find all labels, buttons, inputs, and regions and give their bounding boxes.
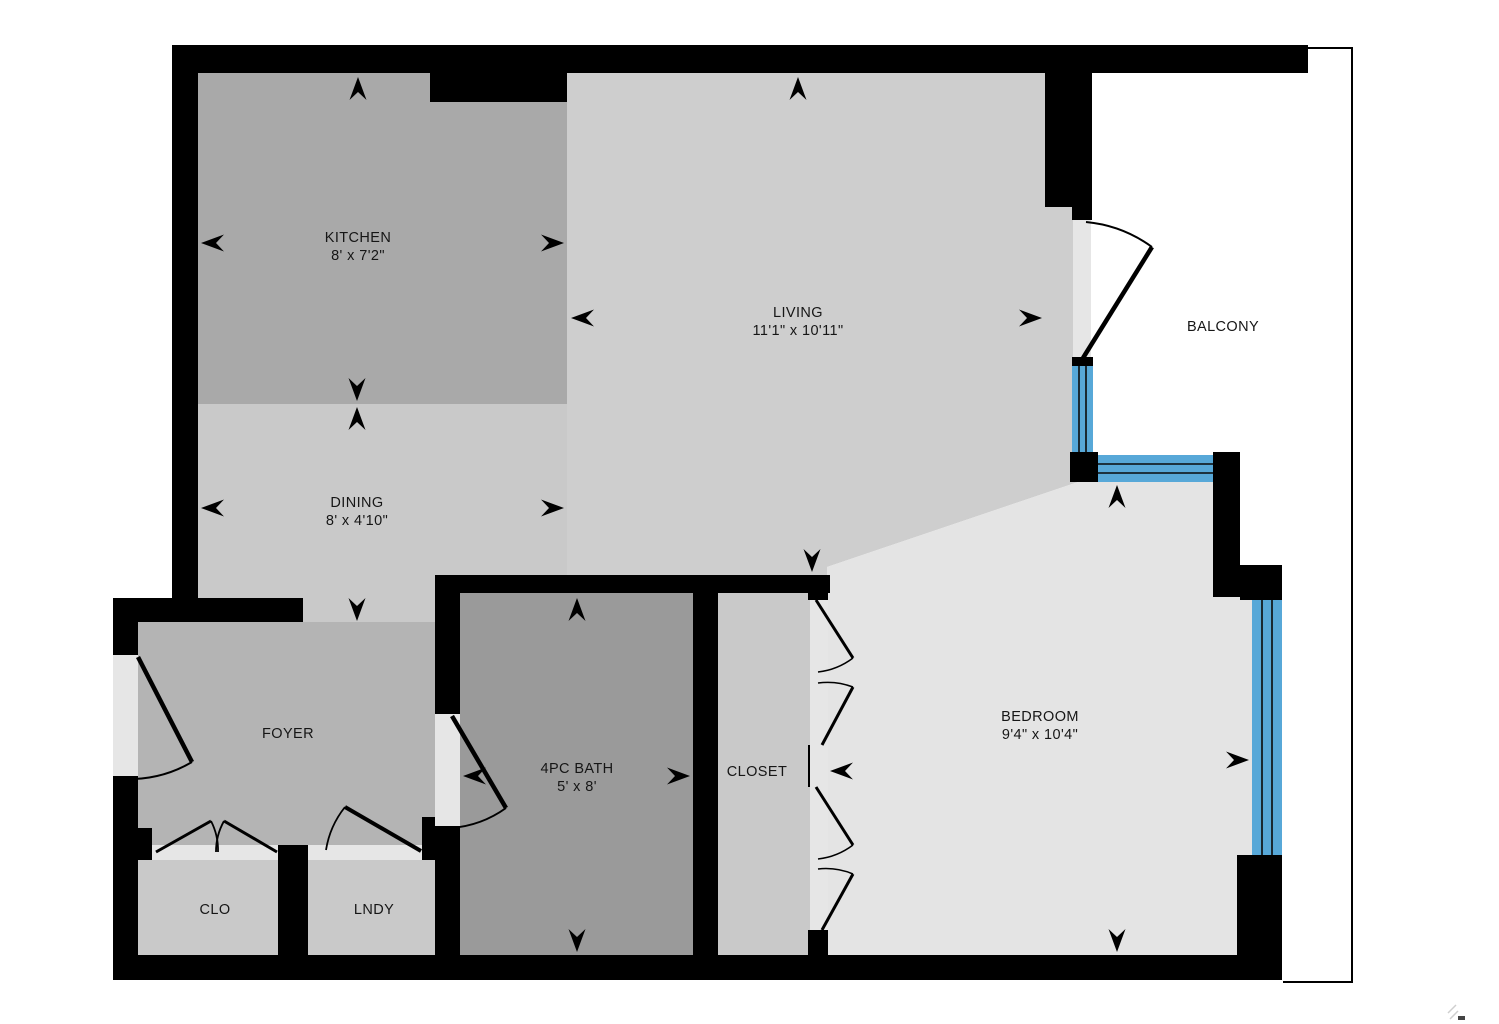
label-bath-dims: 5' x 8' — [557, 779, 597, 795]
opening-closet-bifold-track — [810, 600, 828, 930]
wall-bottom — [113, 955, 1282, 980]
label-lndy-name: LNDY — [354, 902, 394, 918]
wall-left — [172, 45, 198, 598]
wall-foyer-corner — [113, 828, 152, 860]
label-bedroom-name: BEDROOM — [1001, 709, 1079, 725]
label-kitchen-name: KITCHEN — [325, 230, 391, 246]
balcony-outline — [1283, 48, 1352, 982]
label-living-name: LIVING — [773, 305, 823, 321]
label-bath-name: 4PC BATH — [540, 761, 613, 777]
window-living-bedroom-horizontal — [1098, 455, 1213, 482]
wall-foyer-top — [113, 598, 303, 622]
watermark-stroke-1 — [1448, 1005, 1456, 1013]
watermark-dash — [1458, 1016, 1465, 1020]
label-kitchen-dims: 8' x 7'2" — [331, 248, 385, 264]
wall-window1-cap — [1072, 357, 1093, 366]
wall-bifold-stub-bottom — [808, 930, 828, 958]
wall-bath-west-upper — [435, 575, 460, 714]
wall-living-column — [1045, 73, 1092, 207]
label-balcony-name: BALCONY — [1187, 319, 1259, 335]
window-living-side — [1072, 366, 1093, 452]
wall-window-corner-block — [1070, 452, 1098, 482]
floor-plan-canvas: KITCHEN 8' x 7'2" DINING 8' x 4'10" LIVI… — [0, 0, 1499, 1024]
balcony-door-swing-arc — [1086, 222, 1152, 247]
wall-living-column-stub — [1072, 207, 1092, 220]
watermark-stroke-2 — [1450, 1011, 1458, 1019]
wall-kitchen-notch — [430, 73, 567, 102]
balcony-door-panel — [1083, 247, 1152, 358]
wall-foyer-left-upper — [113, 598, 138, 655]
wall-bedroom-ne-upper — [1213, 452, 1240, 597]
label-living-dims: 11'1" x 10'11" — [752, 323, 843, 339]
wall-foyer-left-lower — [113, 776, 138, 980]
opening-lndy-door — [308, 845, 422, 860]
room-clo-floor — [138, 845, 278, 955]
wall-bath-east — [693, 575, 718, 980]
opening-entry-door — [113, 655, 138, 776]
label-bedroom-dims: 9'4" x 10'4" — [1002, 727, 1078, 743]
label-dining-dims: 8' x 4'10" — [326, 513, 388, 529]
label-closet-name: CLOSET — [727, 764, 787, 780]
opening-bath-door — [435, 714, 460, 826]
wall-clo-lndy-divider — [278, 845, 308, 955]
label-dining-name: DINING — [330, 495, 383, 511]
wall-bedroom-ne-step — [1240, 565, 1282, 600]
floor-plan-page: KITCHEN 8' x 7'2" DINING 8' x 4'10" LIVI… — [0, 0, 1499, 1024]
watermark-mark — [1448, 1005, 1465, 1020]
opening-clo-door — [152, 845, 278, 860]
room-lndy-floor — [308, 845, 437, 955]
wall-bifold-stub-top — [808, 575, 828, 600]
wall-bath-closet-top — [435, 575, 830, 593]
window-bedroom — [1252, 600, 1282, 855]
wall-top — [172, 45, 1308, 73]
label-clo-name: CLO — [199, 902, 230, 918]
opening-balcony-door — [1073, 220, 1091, 357]
label-foyer-name: FOYER — [262, 726, 314, 742]
